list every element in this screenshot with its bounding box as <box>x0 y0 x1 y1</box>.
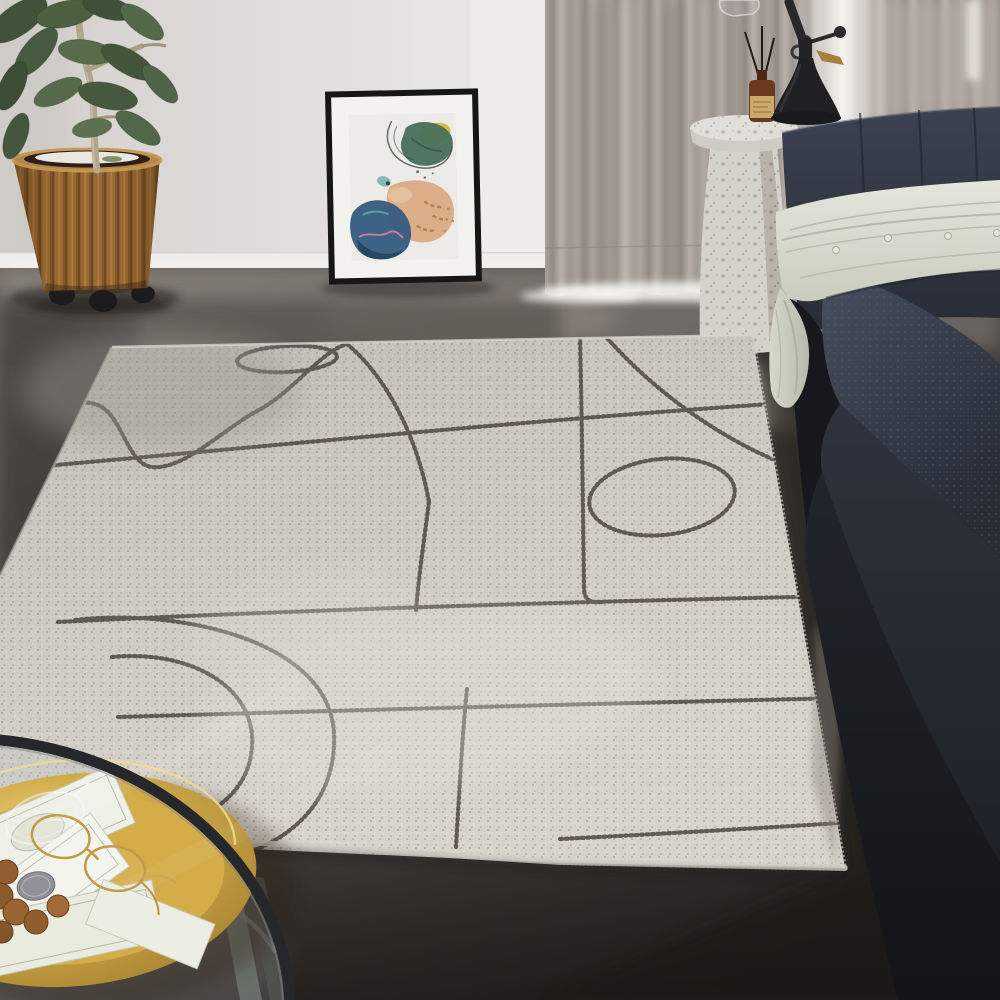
framed-artwork <box>325 88 482 284</box>
curtain-fold-shadow <box>590 0 608 300</box>
coin-copper <box>24 910 48 934</box>
window-light-slit <box>966 0 980 80</box>
blanket-button <box>833 247 840 254</box>
lamp-knob <box>834 26 846 38</box>
blanket-button <box>885 235 892 242</box>
blanket-button <box>945 233 952 240</box>
rug-shade-top-left <box>20 330 300 450</box>
pot-soil-green <box>102 156 122 162</box>
living-room-photo <box>0 0 1000 1000</box>
coin-copper <box>47 895 69 917</box>
curtain-right-panel <box>880 0 1000 115</box>
wall-bright-edge <box>470 0 548 272</box>
curtain-fold-shadow <box>660 0 682 300</box>
glass-vase <box>720 0 760 16</box>
plant-twig <box>142 45 166 47</box>
nursery-pot <box>35 152 139 164</box>
hem-light <box>520 289 640 303</box>
curtain-fold-light <box>620 0 634 300</box>
blanket-button <box>994 230 1000 237</box>
